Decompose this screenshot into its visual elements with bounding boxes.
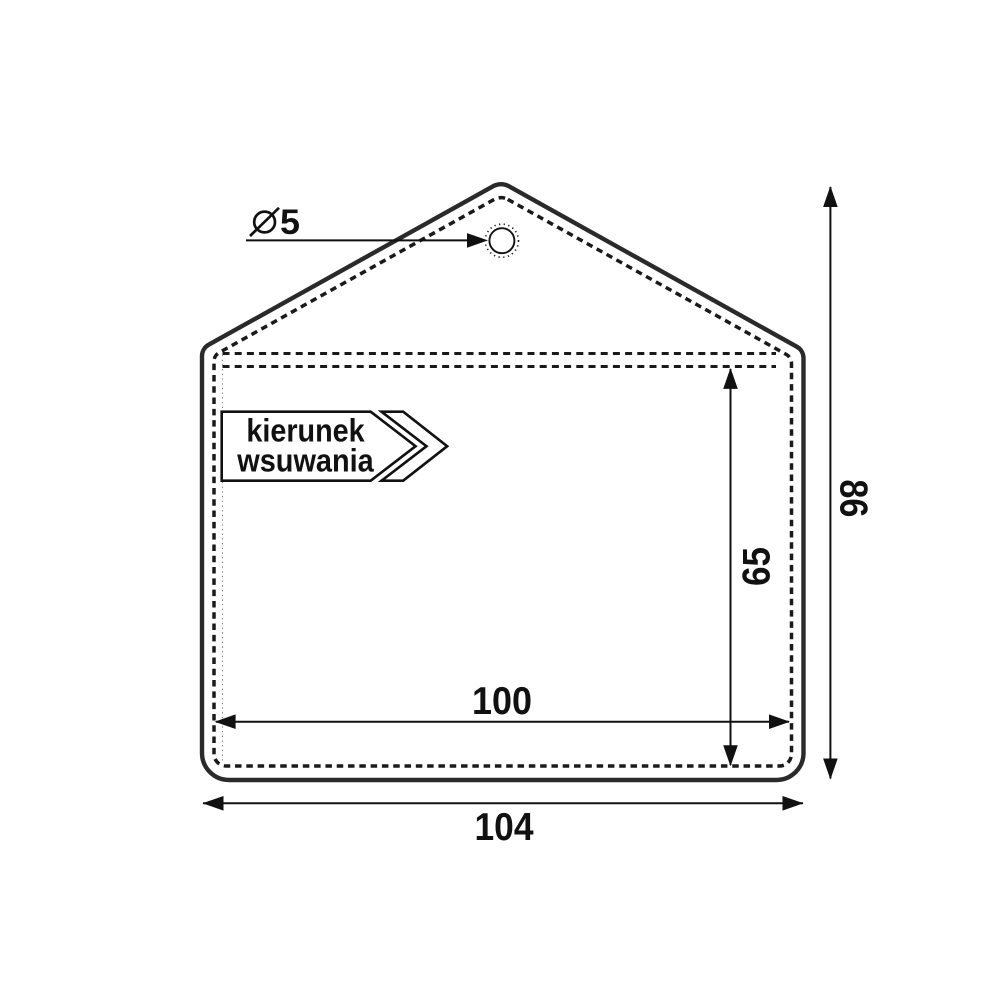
svg-text:65: 65: [735, 547, 778, 586]
svg-text:86: 86: [832, 479, 875, 517]
svg-text:100: 100: [472, 680, 532, 723]
svg-text:wsuwania: wsuwania: [236, 443, 374, 479]
svg-text:5: 5: [280, 203, 300, 242]
svg-text:104: 104: [475, 806, 534, 849]
